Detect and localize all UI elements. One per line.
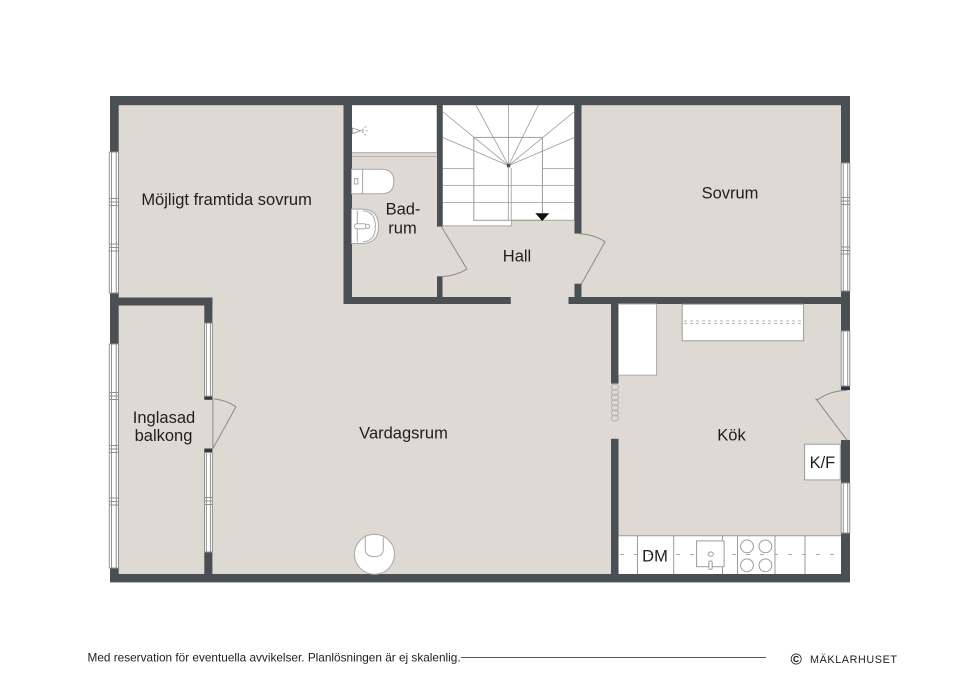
svg-text:Inglasad: Inglasad [133, 409, 195, 427]
svg-text:DM: DM [642, 547, 668, 565]
svg-text:K/F: K/F [810, 454, 836, 472]
svg-text:©: © [791, 652, 803, 669]
svg-text:Kök: Kök [717, 427, 746, 445]
svg-text:Vardagsrum: Vardagsrum [359, 425, 448, 443]
svg-text:Hall: Hall [503, 248, 531, 266]
svg-text:MÄKLARHUSET: MÄKLARHUSET [810, 654, 898, 666]
svg-text:balkong: balkong [135, 427, 193, 445]
svg-text:Med reservation för eventuella: Med reservation för eventuella avvikelse… [88, 651, 461, 665]
svg-text:Bad-: Bad- [386, 201, 421, 219]
svg-text:Sovrum: Sovrum [702, 185, 759, 203]
svg-text:rum: rum [388, 220, 416, 238]
svg-text:Möjligt framtida sovrum: Möjligt framtida sovrum [141, 191, 312, 209]
